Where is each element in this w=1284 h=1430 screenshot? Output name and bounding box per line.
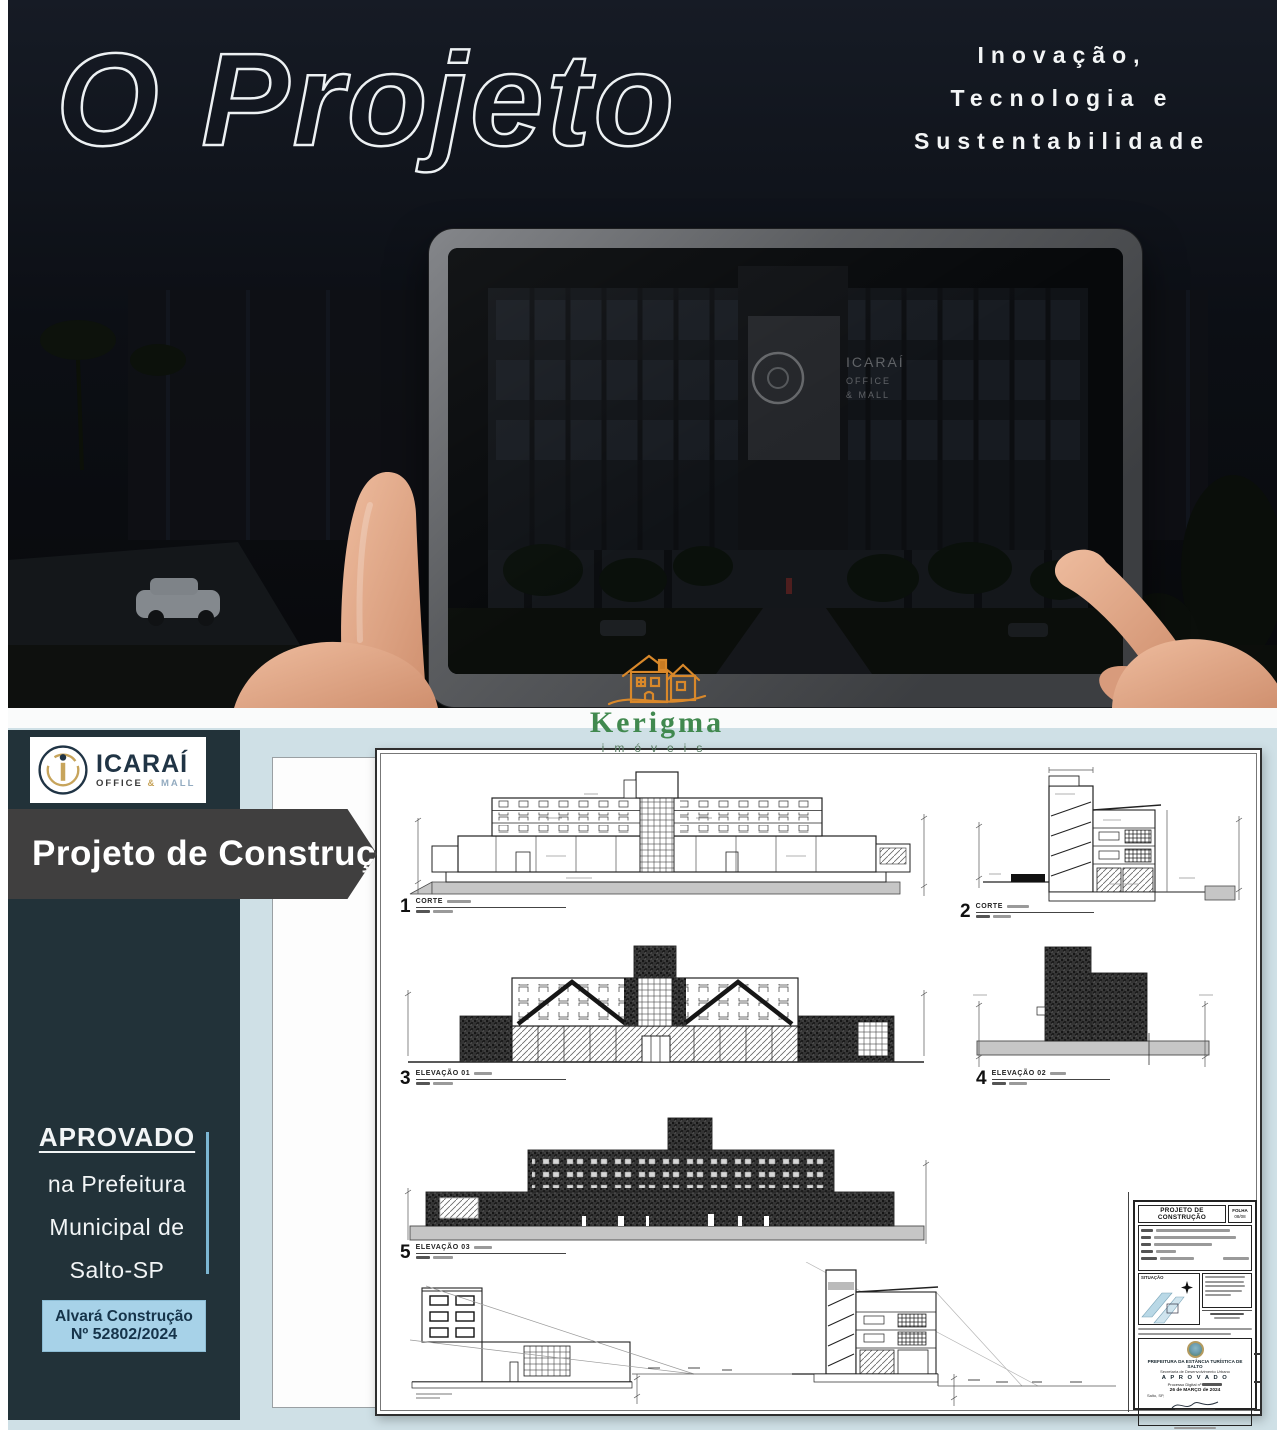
- watermark-name: Kerigma: [572, 708, 742, 738]
- stamp-org: PREFEITURA DA ESTÂNCIA TURÍSTICA DE SALT…: [1141, 1359, 1249, 1369]
- binding-mark: [1254, 1353, 1260, 1355]
- badge-line-1: Alvará Construção: [43, 1308, 205, 1326]
- titleblock-title: PROJETO DE CONSTRUÇÃO: [1138, 1205, 1226, 1223]
- accent-line: [206, 1132, 209, 1274]
- drawing-2-title: CORTE: [976, 903, 1004, 910]
- logo-amp: &: [147, 778, 156, 789]
- binding-mark: [1254, 1409, 1260, 1411]
- stamp-process: Processo Digital nº: [1141, 1382, 1249, 1387]
- approval-block: APROVADO na Prefeitura Municipal de Salt…: [32, 1122, 202, 1300]
- greeked-text-block: [416, 1082, 566, 1085]
- stamp-status: A P R O V A D O: [1141, 1375, 1249, 1381]
- drawing-1-number: 1: [400, 898, 411, 915]
- house-icon: [601, 652, 713, 708]
- binding-mark: [1254, 1381, 1260, 1383]
- folha-label: FOLHA: [1229, 1208, 1251, 1213]
- drawing-2-number: 2: [960, 903, 971, 920]
- title-block: PROJETO DE CONSTRUÇÃO FOLHA 08/08 SITUAÇ…: [1133, 1200, 1257, 1410]
- icarai-name: ICARAÍ: [96, 752, 195, 777]
- label-drawing-1: 1 CORTE: [400, 898, 566, 915]
- approval-line-3: Salto-SP: [32, 1257, 202, 1284]
- site-map: [1140, 1277, 1198, 1325]
- document-section: ICARAÍ OFFICE & MALL Projeto de Construç…: [8, 708, 1277, 1430]
- folha-value: 08/08: [1229, 1214, 1251, 1219]
- left-hand: [234, 472, 438, 708]
- badge-line-2: Nº 52802/2024: [43, 1326, 205, 1344]
- tagline-line-3: Sustentabilidade: [866, 128, 1258, 155]
- approval-line-1: na Prefeitura: [32, 1171, 202, 1198]
- watermark-tagline: imóveis: [572, 741, 742, 755]
- permit-badge: Alvará Construção Nº 52802/2024: [42, 1300, 206, 1352]
- signature-caption-box: [1202, 1310, 1252, 1325]
- signature-icon: [1169, 1398, 1221, 1411]
- hero-photo-section: ICARAÍ OFFICE & MALL O Projeto: [8, 0, 1277, 708]
- logo-mall: MALL: [161, 778, 195, 789]
- approval-headline: APROVADO: [32, 1122, 202, 1153]
- drawing-3-title: ELEVAÇÃO 01: [416, 1070, 471, 1077]
- greeked-text-block: [976, 915, 1094, 918]
- stamp-dept: Secretaria de Desenvolvimento Urbano: [1141, 1369, 1249, 1374]
- drawing-elevation-3: [396, 1104, 936, 1249]
- label-drawing-2: 2 CORTE: [960, 903, 1094, 920]
- icarai-logo-text: ICARAÍ OFFICE & MALL: [96, 752, 195, 789]
- banner-projeto-construcao: Projeto de Construção: [8, 809, 377, 899]
- drawing-4-title: ELEVAÇÃO 02: [992, 1070, 1047, 1077]
- drawing-3-number: 3: [400, 1070, 411, 1087]
- greeked-text-block: [416, 910, 566, 913]
- hero-title: O Projeto: [56, 24, 677, 175]
- drawing-section-1: [396, 760, 936, 910]
- icarai-logo: ICARAÍ OFFICE & MALL: [30, 737, 206, 803]
- label-drawing-4: 4 ELEVAÇÃO 02: [976, 1070, 1110, 1087]
- greeked-text-block: [1138, 1225, 1252, 1271]
- drawing-5-title: ELEVAÇÃO 03: [416, 1244, 471, 1251]
- drawing-elevation-1: [396, 930, 936, 1080]
- logo-office: OFFICE: [96, 778, 143, 789]
- drawing-5-number: 5: [400, 1244, 411, 1261]
- north-compass-icon: [1181, 1281, 1193, 1294]
- drawing-sightline-study-left: [392, 1280, 822, 1408]
- approval-line-2: Municipal de: [32, 1214, 202, 1241]
- drawing-sightline-study-right: [786, 1262, 1130, 1412]
- hero-tagline: Inovação, Tecnologia e Sustentabilidade: [866, 42, 1258, 171]
- icarai-subtitle: OFFICE & MALL: [96, 778, 195, 789]
- greeked-text-block: [1138, 1328, 1252, 1335]
- greeked-text-block: [416, 1256, 566, 1259]
- greeked-text-block: [1141, 1416, 1249, 1430]
- drawing-4-number: 4: [976, 1070, 987, 1087]
- right-hand: [1055, 550, 1277, 708]
- greeked-text-block: [992, 1082, 1110, 1085]
- tagline-line-1: Inovação,: [866, 42, 1258, 69]
- approval-stamp: PREFEITURA DA ESTÂNCIA TURÍSTICA DE SALT…: [1138, 1338, 1252, 1426]
- tagline-line-2: Tecnologia e: [866, 85, 1258, 112]
- flyer-canvas: ICARAÍ OFFICE & MALL O Projeto: [0, 0, 1284, 1430]
- label-drawing-3: 3 ELEVAÇÃO 01: [400, 1070, 566, 1087]
- agency-watermark: Kerigma imóveis: [572, 652, 742, 755]
- municipal-seal-icon: [1187, 1341, 1204, 1358]
- icarai-circle-icon: [36, 743, 90, 797]
- sheet-number-box: FOLHA 08/08: [1228, 1205, 1252, 1223]
- greeked-text-block: [1202, 1273, 1252, 1308]
- situacao-map-box: SITUAÇÃO: [1138, 1273, 1200, 1325]
- drawing-elevation-2: [953, 935, 1253, 1080]
- drawing-section-2: [953, 758, 1253, 918]
- banner-label: Projeto de Construção: [8, 834, 418, 874]
- label-drawing-5: 5 ELEVAÇÃO 03: [400, 1244, 566, 1261]
- drawing-1-title: CORTE: [416, 898, 444, 905]
